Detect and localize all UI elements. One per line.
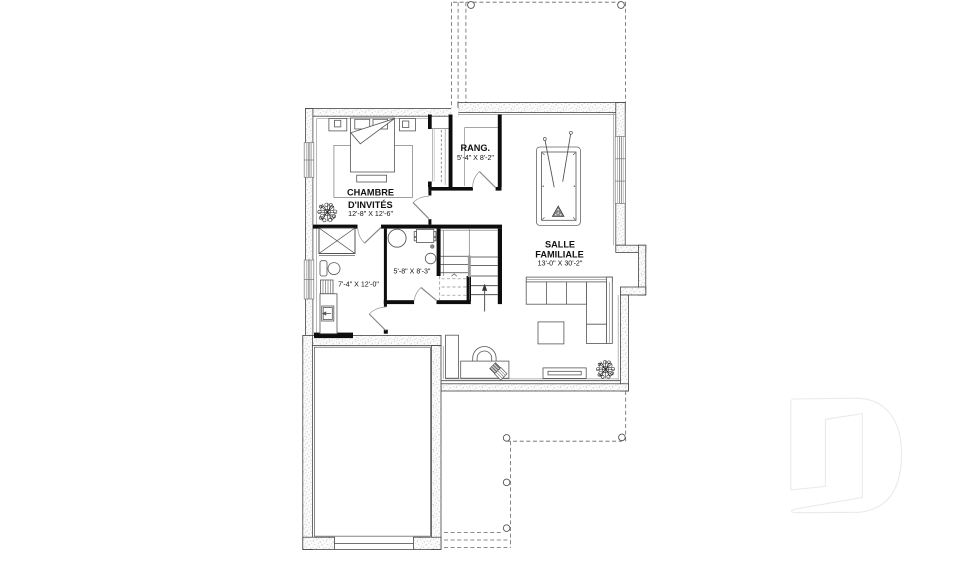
svg-text:RANG.: RANG. (460, 143, 490, 153)
svg-text:FAMILIALE: FAMILIALE (535, 249, 584, 259)
svg-text:D'INVITÉS: D'INVITÉS (348, 199, 393, 210)
svg-text:SALLE: SALLE (545, 240, 575, 250)
svg-text:13'-0" X 30'-2": 13'-0" X 30'-2" (538, 259, 583, 267)
svg-text:5'-8" X 8'-3": 5'-8" X 8'-3" (394, 268, 431, 276)
svg-text:CHAMBRE: CHAMBRE (347, 188, 394, 198)
svg-text:5'-4" X 8'-2": 5'-4" X 8'-2" (457, 154, 494, 162)
svg-text:12'-8" X 12'-6": 12'-8" X 12'-6" (348, 210, 393, 218)
svg-text:7'-4" X 12'-0": 7'-4" X 12'-0" (338, 280, 379, 288)
